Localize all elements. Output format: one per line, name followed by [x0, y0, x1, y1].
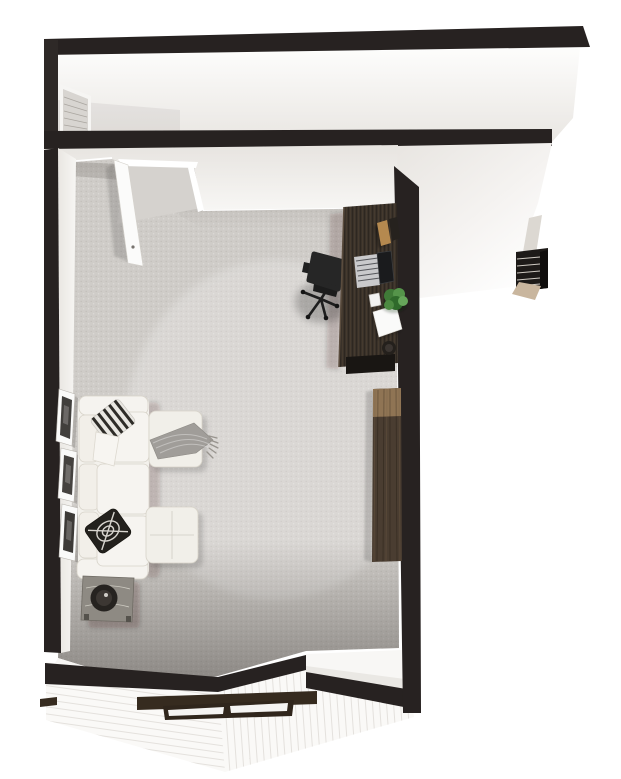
picture-frame [58, 448, 80, 504]
wood-console [364, 388, 402, 562]
table-leg [84, 614, 89, 620]
desk-under-bar [346, 354, 395, 374]
floorplan-render [0, 0, 621, 779]
stair-stringer [540, 250, 548, 289]
table-leg [126, 616, 131, 622]
right-wing [396, 143, 552, 300]
cup [382, 341, 396, 355]
ottoman [146, 507, 203, 568]
chair-backrest [309, 254, 344, 289]
side-table [81, 576, 140, 628]
laptop-screen [377, 251, 394, 284]
picture-frame [59, 504, 81, 563]
white-pillow [93, 432, 119, 466]
picture-frame [56, 389, 78, 448]
door-handle [131, 245, 134, 248]
decorative-bowl [91, 585, 118, 612]
floorplan-svg [0, 0, 621, 779]
sofa-back-cushion [79, 464, 99, 510]
hallway [44, 26, 590, 150]
sofa-seat-cushion [97, 464, 149, 514]
smartphone [369, 293, 381, 307]
laptop [354, 251, 394, 288]
